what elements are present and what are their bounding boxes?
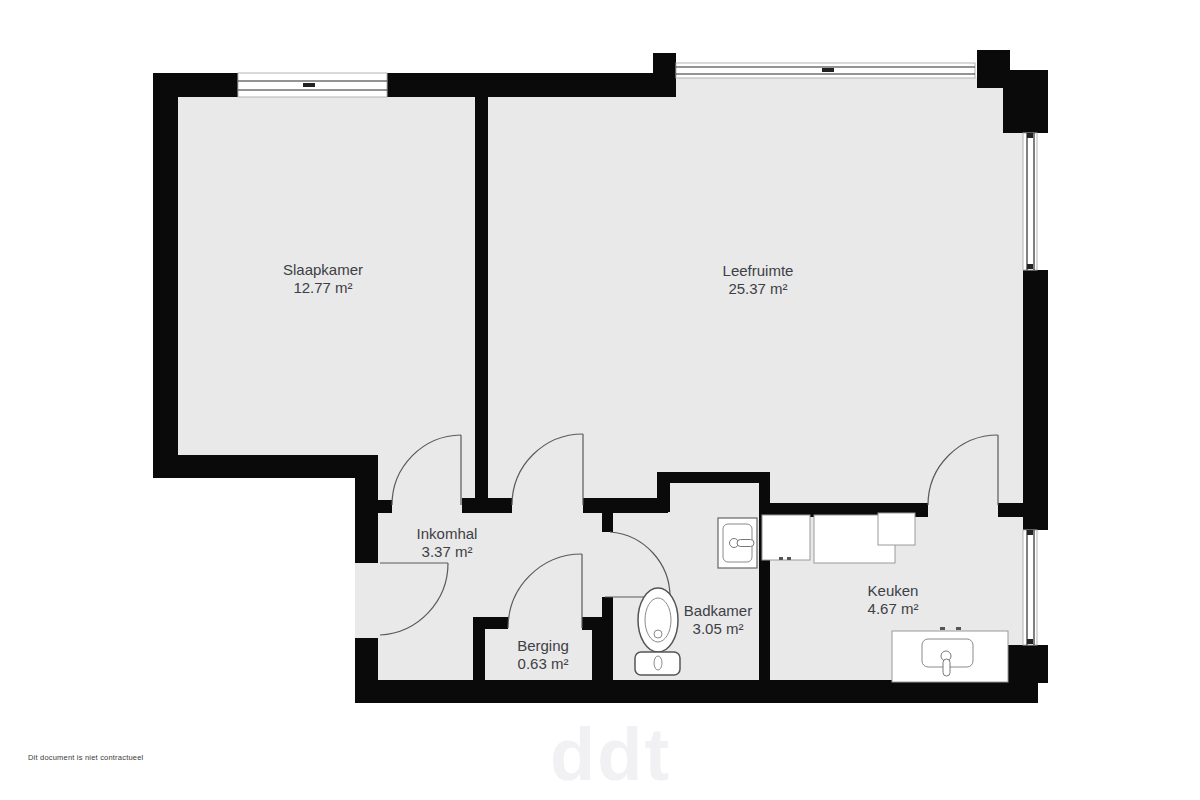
door-berging-icon bbox=[508, 554, 582, 628]
room-name: Leefruimte bbox=[723, 262, 794, 280]
room-area: 3.05 m² bbox=[684, 620, 752, 638]
kitchen-counter-icon bbox=[762, 513, 915, 563]
room-label-leefruimte: Leefruimte 25.37 m² bbox=[723, 262, 794, 298]
room-area: 0.63 m² bbox=[517, 655, 569, 673]
window-icon bbox=[1023, 133, 1037, 270]
door-slaapkamer-icon bbox=[392, 435, 461, 505]
window-icon bbox=[1023, 530, 1037, 645]
disclaimer-text: Dit document is niet contractueel bbox=[28, 753, 143, 762]
room-name: Berging bbox=[517, 637, 569, 655]
room-area: 25.37 m² bbox=[723, 280, 794, 298]
window-icon bbox=[676, 63, 975, 78]
room-name: Keuken bbox=[868, 582, 919, 600]
door-badkamer-icon bbox=[605, 532, 670, 597]
room-label-slaapkamer: Slaapkamer 12.77 m² bbox=[283, 261, 363, 297]
room-label-keuken: Keuken 4.67 m² bbox=[868, 582, 919, 618]
room-name: Badkamer bbox=[684, 602, 752, 620]
kitchen-sink-icon bbox=[892, 627, 1008, 682]
bathroom-sink-icon bbox=[718, 518, 757, 568]
door-keuken-icon bbox=[928, 435, 998, 505]
toilet-icon bbox=[635, 588, 680, 675]
door-entrance-icon bbox=[380, 563, 448, 635]
plan-vector-layer bbox=[0, 0, 1200, 800]
room-label-berging: Berging 0.63 m² bbox=[517, 637, 569, 673]
room-label-inkomhal: Inkomhal 3.37 m² bbox=[417, 525, 478, 561]
floorplan: Slaapkamer 12.77 m² Leefruimte 25.37 m² … bbox=[0, 0, 1200, 800]
room-area: 4.67 m² bbox=[868, 600, 919, 618]
room-name: Inkomhal bbox=[417, 525, 478, 543]
room-area: 12.77 m² bbox=[283, 279, 363, 297]
watermark: ddt bbox=[550, 712, 671, 797]
room-name: Slaapkamer bbox=[283, 261, 363, 279]
room-label-badkamer: Badkamer 3.05 m² bbox=[684, 602, 752, 638]
window-icon bbox=[238, 73, 387, 97]
room-area: 3.37 m² bbox=[417, 543, 478, 561]
door-leefruimte-icon bbox=[512, 434, 583, 505]
